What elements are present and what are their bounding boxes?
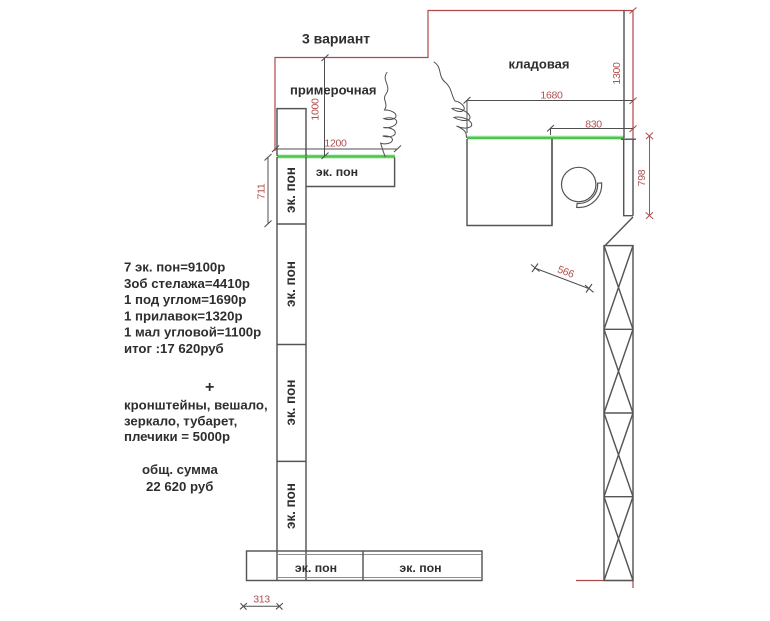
svg-text:эк. пон: эк. пон bbox=[283, 483, 298, 529]
svg-text:общ. сумма: общ. сумма bbox=[142, 462, 218, 477]
svg-text:примерочная: примерочная bbox=[290, 83, 376, 98]
svg-text:эк. пон: эк. пон bbox=[283, 167, 298, 213]
svg-text:эк. пон: эк. пон bbox=[283, 380, 298, 426]
svg-text:1 прилавок=1320р: 1 прилавок=1320р bbox=[124, 308, 243, 323]
svg-text:1680: 1680 bbox=[540, 90, 563, 102]
svg-text:эк. пон: эк. пон bbox=[316, 165, 358, 179]
svg-text:зеркало, тубарет,: зеркало, тубарет, bbox=[124, 414, 237, 429]
svg-text:798: 798 bbox=[636, 169, 648, 186]
svg-text:1 мал угловой=1100р: 1 мал угловой=1100р bbox=[124, 325, 261, 340]
svg-text:7 эк. пон=9100р: 7 эк. пон=9100р bbox=[124, 260, 225, 275]
svg-text:22 620 руб: 22 620 руб bbox=[146, 479, 213, 494]
svg-text:1000: 1000 bbox=[310, 98, 322, 121]
svg-text:эк. пон: эк. пон bbox=[283, 261, 298, 307]
svg-text:эк. пон: эк. пон bbox=[399, 561, 441, 575]
svg-text:эк. пон: эк. пон bbox=[295, 561, 337, 575]
svg-text:711: 711 bbox=[256, 183, 268, 199]
svg-text:+: + bbox=[205, 379, 214, 396]
svg-text:1300: 1300 bbox=[611, 62, 623, 85]
svg-text:итог :17 620руб: итог :17 620руб bbox=[124, 341, 224, 356]
svg-text:кронштейны, вешало,: кронштейны, вешало, bbox=[124, 397, 268, 412]
svg-text:830: 830 bbox=[585, 119, 602, 131]
svg-text:1200: 1200 bbox=[324, 138, 347, 150]
svg-text:1 под углом=1690р: 1 под углом=1690р bbox=[124, 292, 246, 307]
svg-text:3об стелажа=4410р: 3об стелажа=4410р bbox=[124, 276, 250, 291]
svg-text:плечики = 5000р: плечики = 5000р bbox=[124, 429, 230, 444]
svg-text:3 вариант: 3 вариант bbox=[302, 31, 370, 47]
svg-text:313: 313 bbox=[253, 594, 270, 606]
svg-text:кладовая: кладовая bbox=[509, 57, 570, 72]
